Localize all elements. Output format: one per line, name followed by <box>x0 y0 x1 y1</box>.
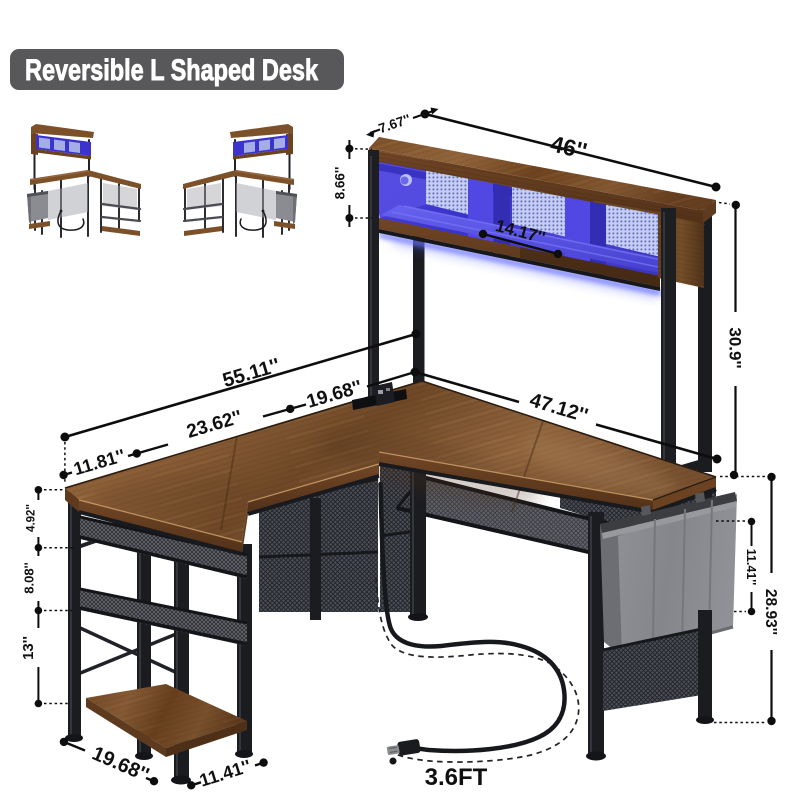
svg-text:Reversible L Shaped Desk: Reversible L Shaped Desk <box>25 54 318 87</box>
svg-text:13'': 13'' <box>20 636 37 660</box>
svg-text:4.92'': 4.92'' <box>25 504 37 532</box>
svg-text:11.41'': 11.41'' <box>744 549 758 586</box>
svg-text:28.93'': 28.93'' <box>762 589 779 635</box>
svg-text:8.66'': 8.66'' <box>333 167 348 200</box>
svg-text:3.6FT: 3.6FT <box>425 764 488 791</box>
svg-text:8.08'': 8.08'' <box>22 562 37 593</box>
svg-text:30.9'': 30.9'' <box>725 327 744 368</box>
